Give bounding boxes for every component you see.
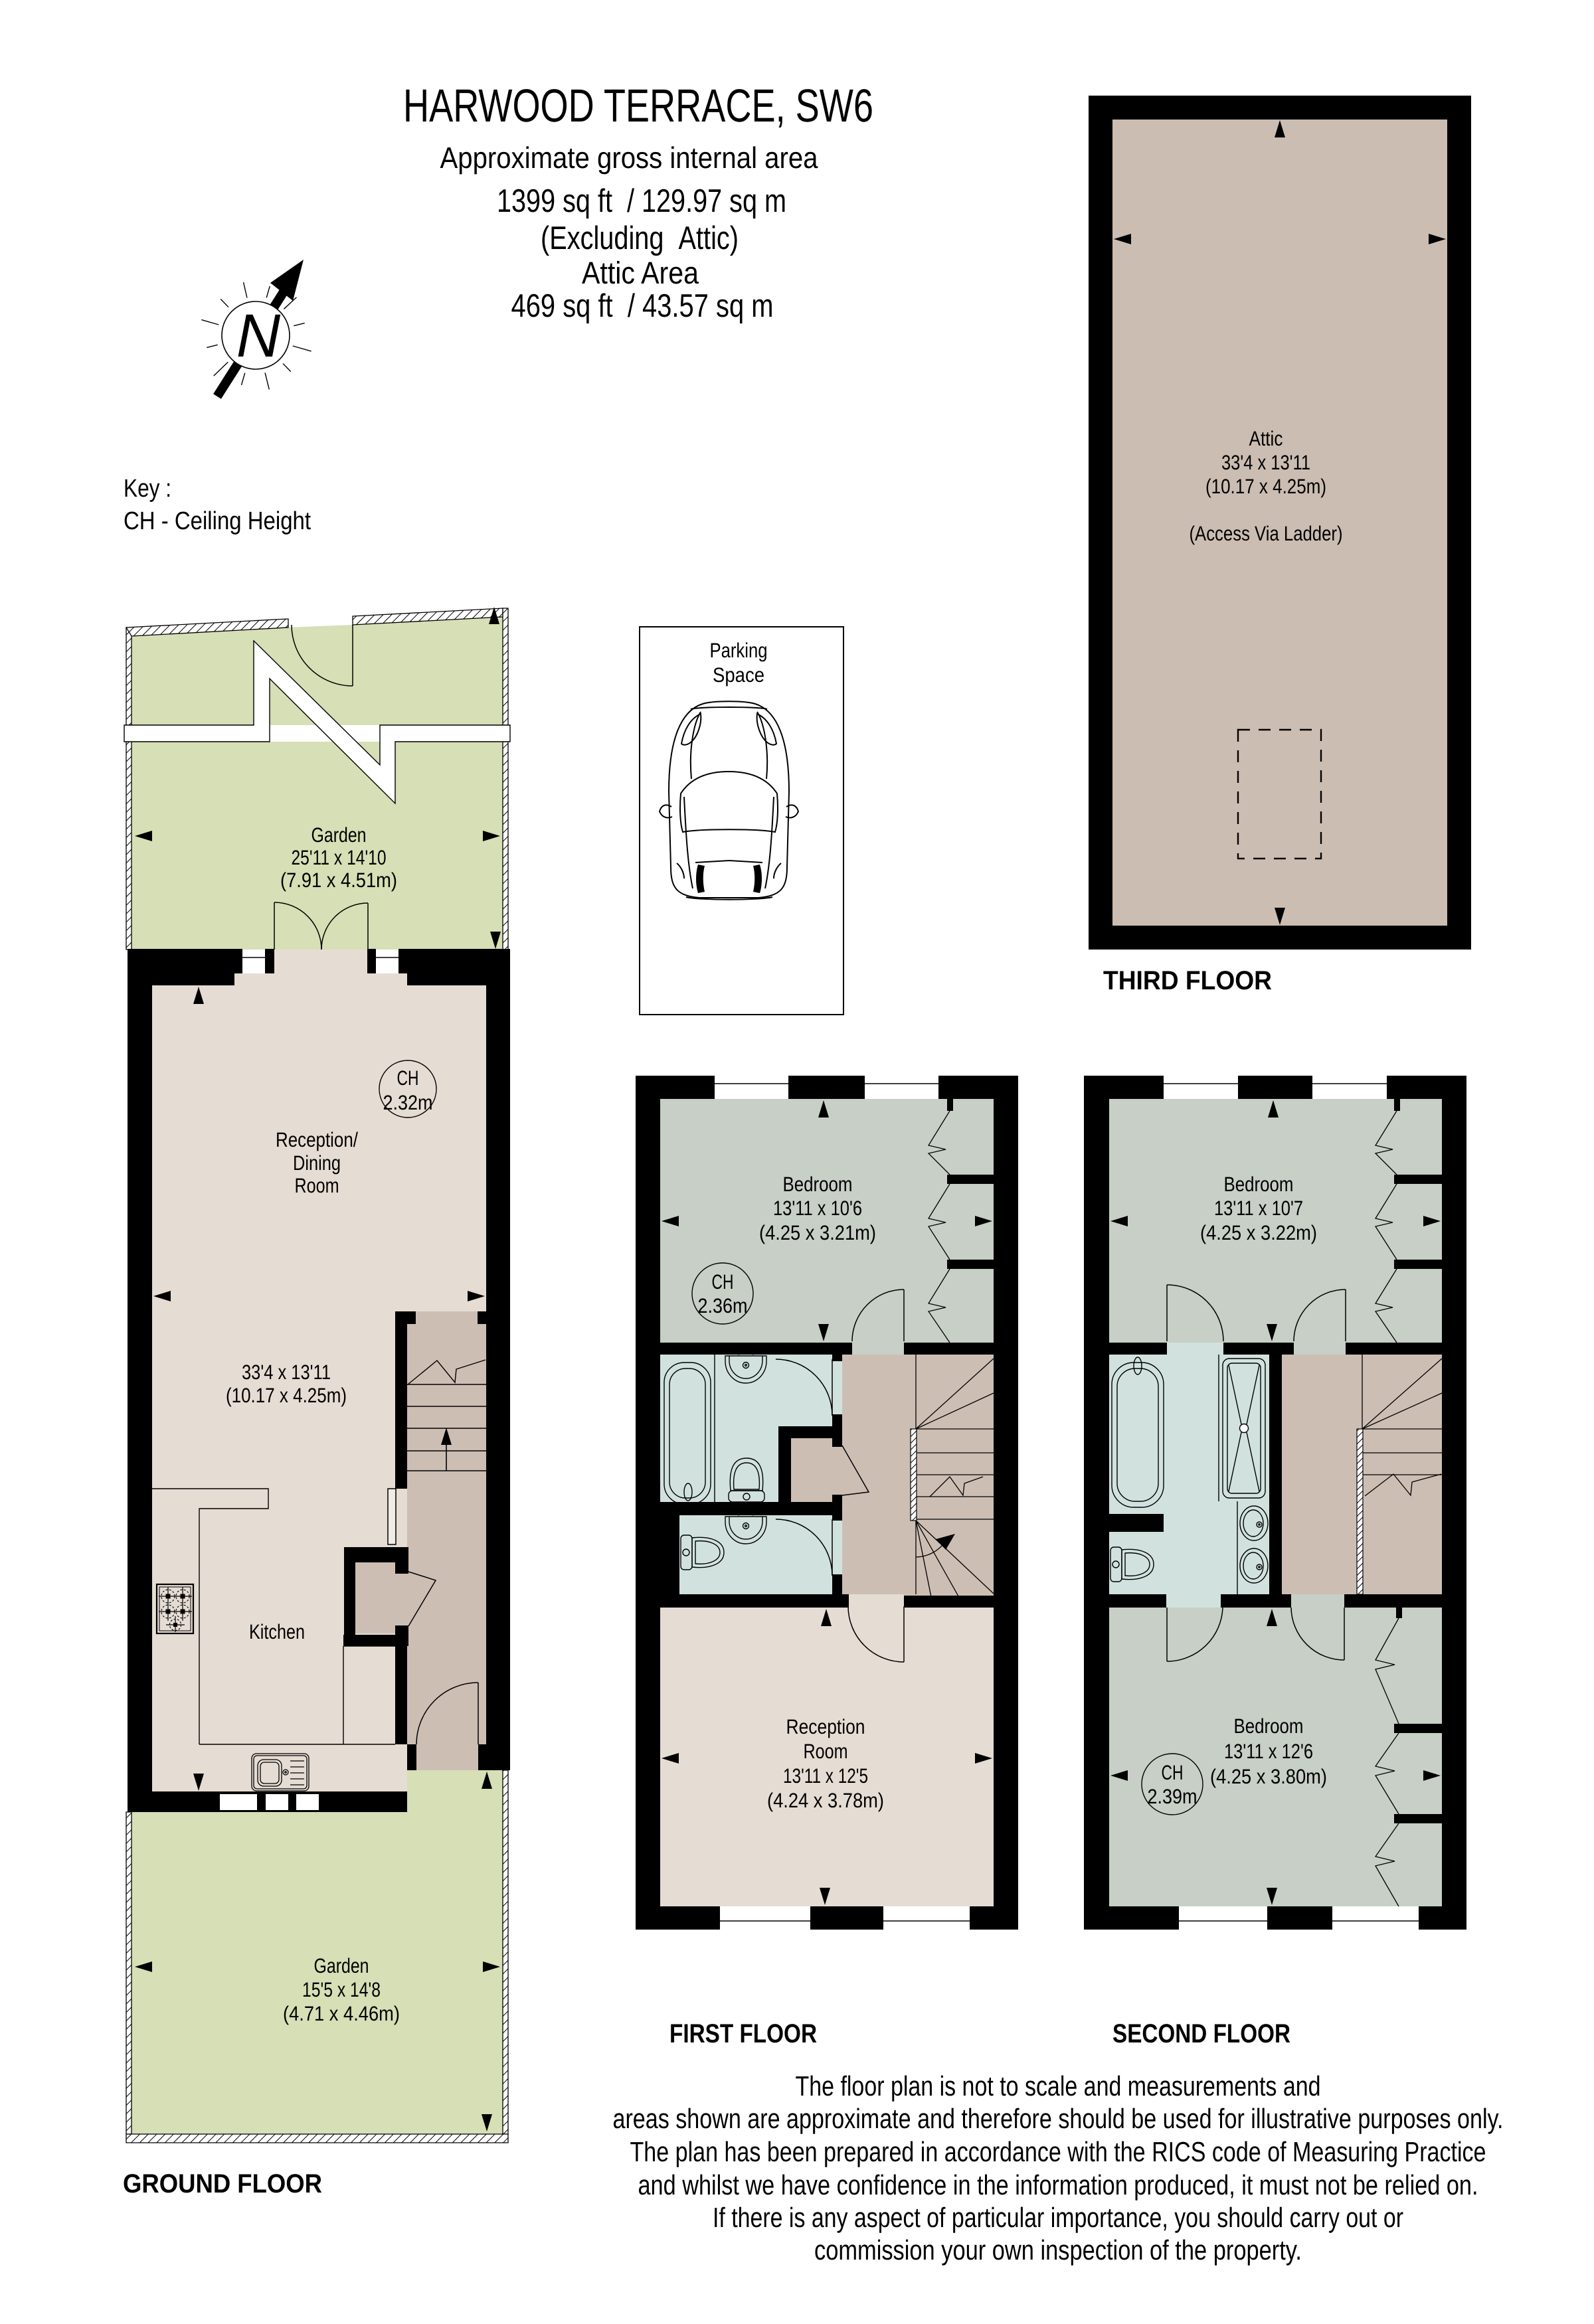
svg-text:Reception/: Reception/ bbox=[276, 1128, 358, 1151]
svg-text:Room: Room bbox=[804, 1740, 848, 1763]
svg-text:N: N bbox=[236, 302, 281, 370]
svg-text:(7.91 x 4.51m): (7.91 x 4.51m) bbox=[280, 869, 397, 892]
svg-text:33'4 x 13'11: 33'4 x 13'11 bbox=[242, 1361, 331, 1384]
svg-text:(10.17 x 4.25m): (10.17 x 4.25m) bbox=[226, 1384, 347, 1407]
svg-text:13'11 x 12'6: 13'11 x 12'6 bbox=[1224, 1740, 1313, 1763]
svg-text:commission your own inspection: commission your own inspection of the pr… bbox=[814, 2234, 1302, 2266]
svg-text:Garden: Garden bbox=[314, 1954, 369, 1977]
svg-text:HARWOOD TERRACE, SW6: HARWOOD TERRACE, SW6 bbox=[403, 80, 873, 131]
svg-text:2.36m: 2.36m bbox=[698, 1294, 748, 1317]
svg-text:Space: Space bbox=[713, 663, 764, 687]
svg-text:(4.24 x 3.78m): (4.24 x 3.78m) bbox=[767, 1789, 884, 1812]
svg-text:13'11 x 12'5: 13'11 x 12'5 bbox=[783, 1764, 868, 1787]
svg-text:CH - Ceiling Height: CH - Ceiling Height bbox=[124, 507, 311, 535]
svg-text:Garden: Garden bbox=[311, 823, 367, 847]
svg-text:The plan has been prepared in: The plan has been prepared in accordance… bbox=[630, 2136, 1486, 2167]
svg-text:The floor plan is not to scale: The floor plan is not to scale and measu… bbox=[796, 2070, 1321, 2102]
svg-text:Dining: Dining bbox=[293, 1151, 341, 1175]
svg-text:GROUND FLOOR: GROUND FLOOR bbox=[123, 2169, 322, 2199]
svg-text:(10.17 x 4.25m): (10.17 x 4.25m) bbox=[1205, 475, 1326, 498]
svg-text:2.32m: 2.32m bbox=[383, 1091, 433, 1114]
svg-text:CH: CH bbox=[1162, 1761, 1184, 1784]
svg-text:(4.25 x 3.22m): (4.25 x 3.22m) bbox=[1200, 1221, 1317, 1244]
svg-text:Reception: Reception bbox=[786, 1715, 865, 1738]
svg-text:CH: CH bbox=[397, 1066, 419, 1090]
svg-text:Kitchen: Kitchen bbox=[249, 1620, 305, 1643]
svg-text:THIRD FLOOR: THIRD FLOOR bbox=[1103, 966, 1272, 995]
svg-text:Attic Area: Attic Area bbox=[582, 255, 699, 290]
svg-text:(Excluding Attic): (Excluding Attic) bbox=[541, 220, 739, 256]
svg-text:13'11 x 10'7: 13'11 x 10'7 bbox=[1214, 1197, 1303, 1220]
svg-text:2.39m: 2.39m bbox=[1148, 1785, 1197, 1808]
svg-text:Bedroom: Bedroom bbox=[1224, 1173, 1294, 1196]
svg-text:SECOND FLOOR: SECOND FLOOR bbox=[1112, 2019, 1290, 2048]
svg-text:1399 sq ft / 129.97 sq m: 1399 sq ft / 129.97 sq m bbox=[497, 183, 786, 219]
svg-text:Bedroom: Bedroom bbox=[783, 1173, 853, 1196]
svg-text:(Access Via Ladder): (Access Via Ladder) bbox=[1190, 522, 1343, 545]
svg-text:13'11 x 10'6: 13'11 x 10'6 bbox=[773, 1197, 862, 1220]
svg-text:Room: Room bbox=[295, 1174, 339, 1197]
svg-text:(4.25 x 3.80m): (4.25 x 3.80m) bbox=[1210, 1765, 1327, 1788]
svg-text:If there is any aspect of part: If there is any aspect of particular imp… bbox=[713, 2202, 1403, 2233]
svg-text:and whilst we have confidence: and whilst we have confidence in the inf… bbox=[638, 2169, 1478, 2200]
svg-text:FIRST FLOOR: FIRST FLOOR bbox=[669, 2019, 817, 2048]
svg-text:Approximate gross internal are: Approximate gross internal area bbox=[440, 141, 819, 175]
svg-text:Bedroom: Bedroom bbox=[1234, 1714, 1304, 1738]
svg-text:(4.25 x 3.21m): (4.25 x 3.21m) bbox=[759, 1221, 876, 1244]
svg-text:25'11 x 14'10: 25'11 x 14'10 bbox=[292, 846, 387, 869]
svg-text:areas shown are approximate an: areas shown are approximate and therefor… bbox=[613, 2103, 1504, 2134]
svg-text:33'4 x 13'11: 33'4 x 13'11 bbox=[1221, 451, 1310, 474]
svg-text:Key :: Key : bbox=[124, 475, 171, 503]
svg-text:CH: CH bbox=[712, 1270, 734, 1293]
svg-text:469 sq ft / 43.57 sq m: 469 sq ft / 43.57 sq m bbox=[511, 288, 774, 324]
svg-text:Parking: Parking bbox=[710, 639, 768, 662]
svg-text:Attic: Attic bbox=[1249, 427, 1283, 450]
svg-text:(4.71 x 4.46m): (4.71 x 4.46m) bbox=[283, 2002, 400, 2025]
svg-text:15'5 x 14'8: 15'5 x 14'8 bbox=[302, 1978, 381, 2001]
